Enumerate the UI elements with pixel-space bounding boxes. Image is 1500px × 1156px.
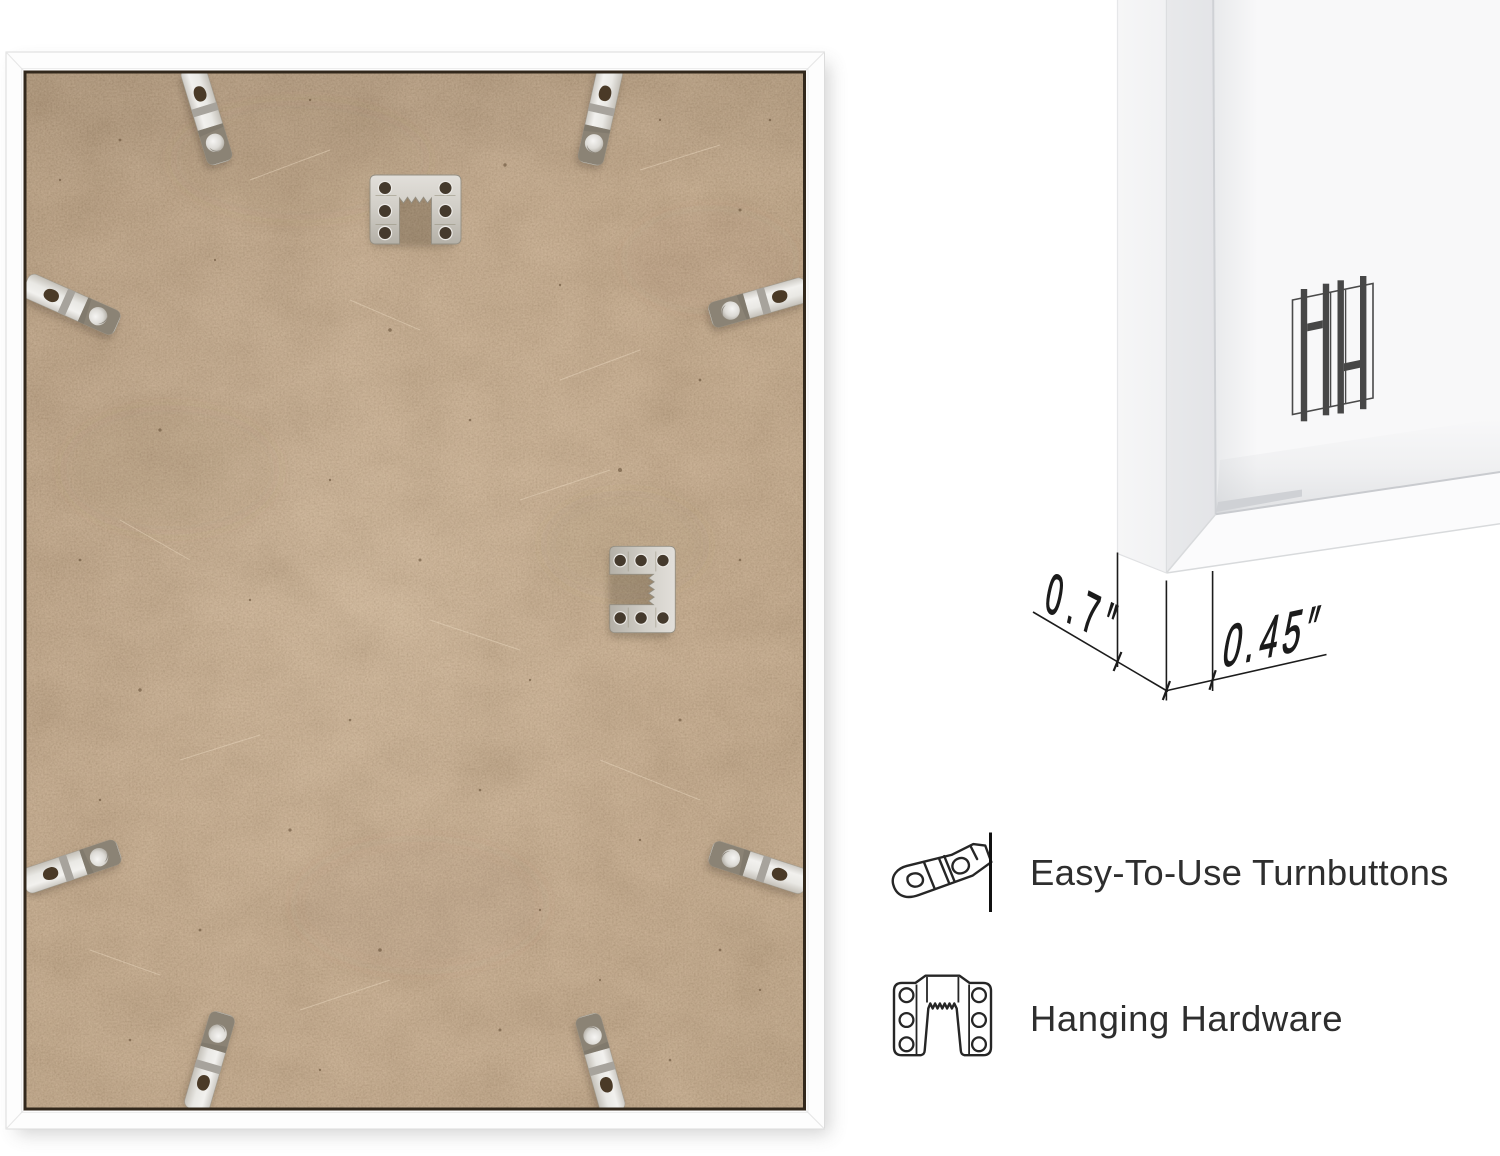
svg-text:Hanging Hardware: Hanging Hardware xyxy=(1030,998,1343,1039)
svg-text:Easy-To-Use Turnbuttons: Easy-To-Use Turnbuttons xyxy=(1030,852,1449,893)
